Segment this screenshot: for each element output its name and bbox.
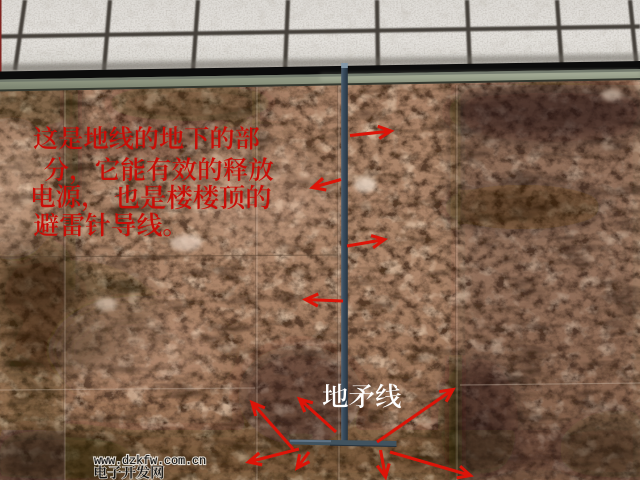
svg-text:www.dzkfw.com.cn: www.dzkfw.com.cn	[94, 454, 206, 468]
